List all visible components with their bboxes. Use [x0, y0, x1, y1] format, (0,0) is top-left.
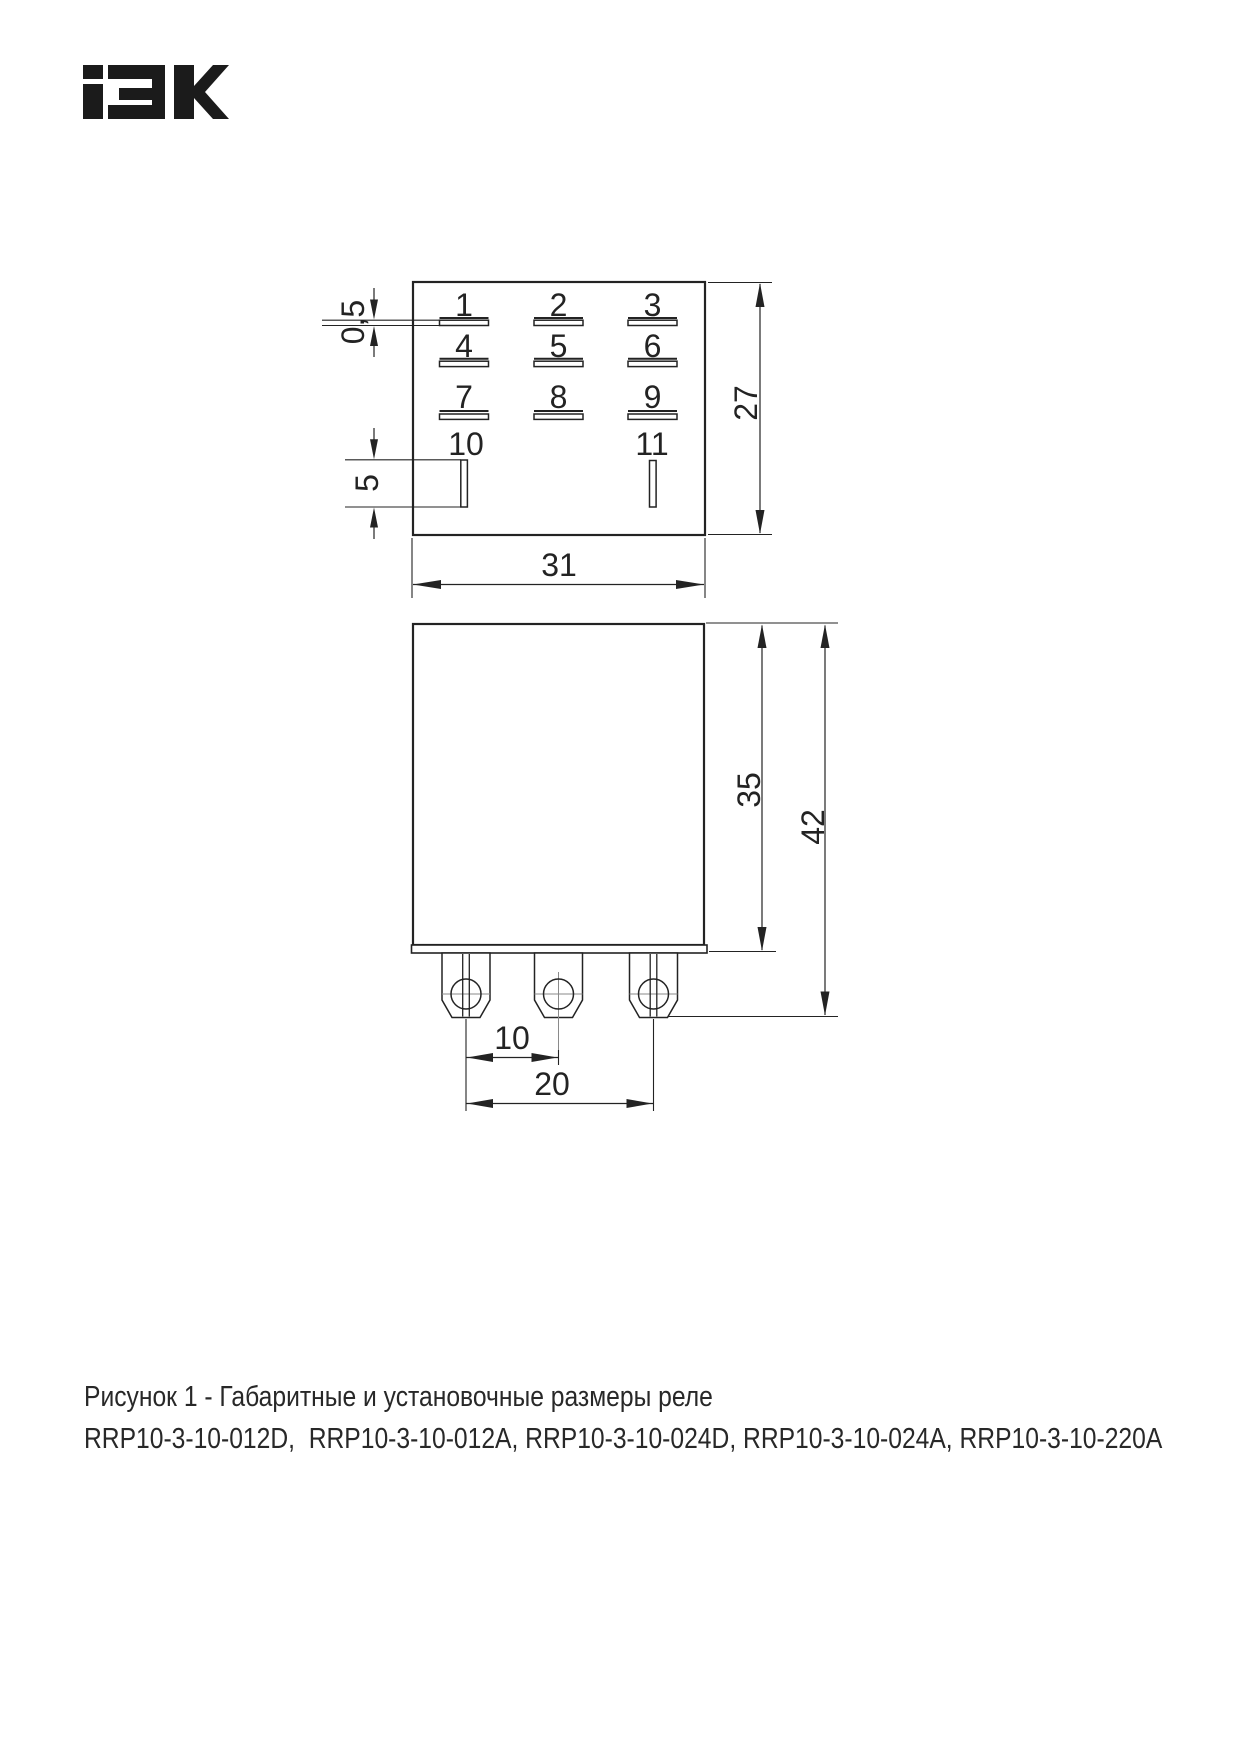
- front-view-base-flange: [412, 945, 708, 953]
- pin-slot-7: [440, 414, 489, 419]
- figure-caption-line1: Рисунок 1 - Габаритные и установочные ра…: [84, 1381, 713, 1414]
- arrowhead-left-icon: [467, 1099, 493, 1108]
- front-view: [412, 624, 708, 1050]
- dimension-label-5: 5: [349, 474, 385, 492]
- pin-slot-4: [440, 361, 489, 366]
- dimension-label-31: 31: [541, 547, 577, 583]
- dimension-label-10: 10: [494, 1020, 530, 1056]
- pin-number-10: 10: [448, 426, 484, 462]
- arrowhead-down-icon: [370, 300, 378, 320]
- dimension-label-27: 27: [728, 385, 764, 421]
- arrowhead-right-icon: [532, 1053, 558, 1062]
- mount-pin-left: [442, 953, 490, 1018]
- arrowhead-up-icon: [758, 625, 767, 649]
- arrowhead-right-icon: [676, 580, 704, 589]
- arrowhead-down-icon: [758, 927, 767, 951]
- figure-caption-line2: RRP10-3-10-012D, RRP10-3-10-012A, RRP10-…: [84, 1423, 1162, 1456]
- pin-slot-10: [461, 460, 468, 507]
- arrowhead-up-icon: [821, 625, 830, 649]
- arrowhead-up-icon: [370, 508, 378, 528]
- pin-slot-6: [628, 361, 677, 366]
- arrowhead-left-icon: [413, 580, 441, 589]
- pin-number-11: 11: [635, 426, 668, 462]
- arrowhead-down-icon: [370, 439, 378, 459]
- dimension-label-35: 35: [731, 772, 767, 808]
- arrowhead-left-icon: [467, 1053, 493, 1062]
- pin-number-9: 9: [644, 379, 662, 415]
- pin-slot-9: [628, 414, 677, 419]
- pin-slot-1: [440, 320, 489, 325]
- dimension-label-20: 20: [534, 1066, 570, 1102]
- pin-number-8: 8: [550, 379, 568, 415]
- arrowhead-right-icon: [627, 1099, 653, 1108]
- page: 1 2 3 4 5 6 7 8 9: [0, 0, 1237, 1748]
- arrowhead-down-icon: [821, 992, 830, 1016]
- arrowhead-down-icon: [756, 510, 765, 534]
- front-view-dimensions: 35 42 10 20: [466, 623, 838, 1111]
- arrowhead-up-icon: [370, 326, 378, 346]
- dimension-label-0-5: 0,5: [335, 300, 371, 344]
- arrowhead-up-icon: [756, 283, 765, 307]
- dimension-label-42: 42: [795, 809, 831, 845]
- pin-slot-8: [534, 414, 583, 419]
- pin-slot-11: [650, 461, 657, 508]
- pin-slot-2: [534, 320, 583, 325]
- front-view-body: [413, 624, 704, 945]
- pin-slot-5: [534, 361, 583, 366]
- top-view: 1 2 3 4 5 6 7 8 9: [413, 282, 705, 535]
- pin-slot-3: [628, 320, 677, 325]
- mount-pin-right: [630, 953, 678, 1018]
- technical-drawing: 1 2 3 4 5 6 7 8 9: [0, 0, 1237, 1748]
- pin-number-7: 7: [455, 379, 473, 415]
